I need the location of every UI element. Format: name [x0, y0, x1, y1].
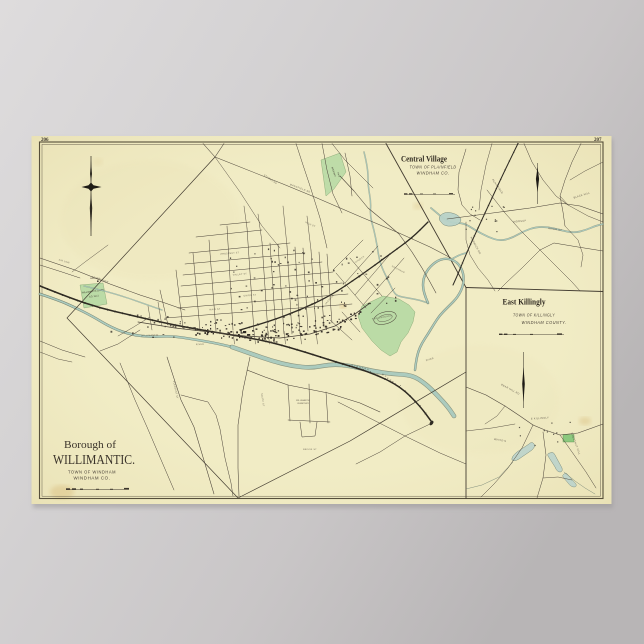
svg-text:TOWN OF KILLINGLY: TOWN OF KILLINGLY — [513, 313, 556, 318]
svg-text:Borough of: Borough of — [64, 440, 117, 451]
svg-text:WILLIMANTIC: WILLIMANTIC — [296, 399, 311, 402]
svg-text:BROOK ST: BROOK ST — [303, 449, 317, 451]
svg-text:Central Village: Central Village — [401, 155, 447, 164]
svg-text:WINDHAM COUNTY.: WINDHAM COUNTY. — [522, 320, 567, 325]
svg-text:CEMETERY: CEMETERY — [297, 403, 310, 405]
svg-text:WINDHAM CO.: WINDHAM CO. — [74, 476, 111, 481]
svg-text:TOWN OF PLAINFIELD: TOWN OF PLAINFIELD — [410, 165, 457, 170]
svg-text:RIVER: RIVER — [196, 344, 204, 346]
svg-text:TOWN OF WINDHAM: TOWN OF WINDHAM — [68, 470, 116, 475]
svg-text:207: 207 — [594, 138, 602, 143]
svg-text:206: 206 — [41, 138, 49, 143]
svg-text:WINDHAM CO.: WINDHAM CO. — [417, 171, 450, 176]
svg-text:East Killingly: East Killingly — [503, 298, 547, 307]
svg-text:WILLIMANTIC.: WILLIMANTIC. — [53, 452, 135, 467]
